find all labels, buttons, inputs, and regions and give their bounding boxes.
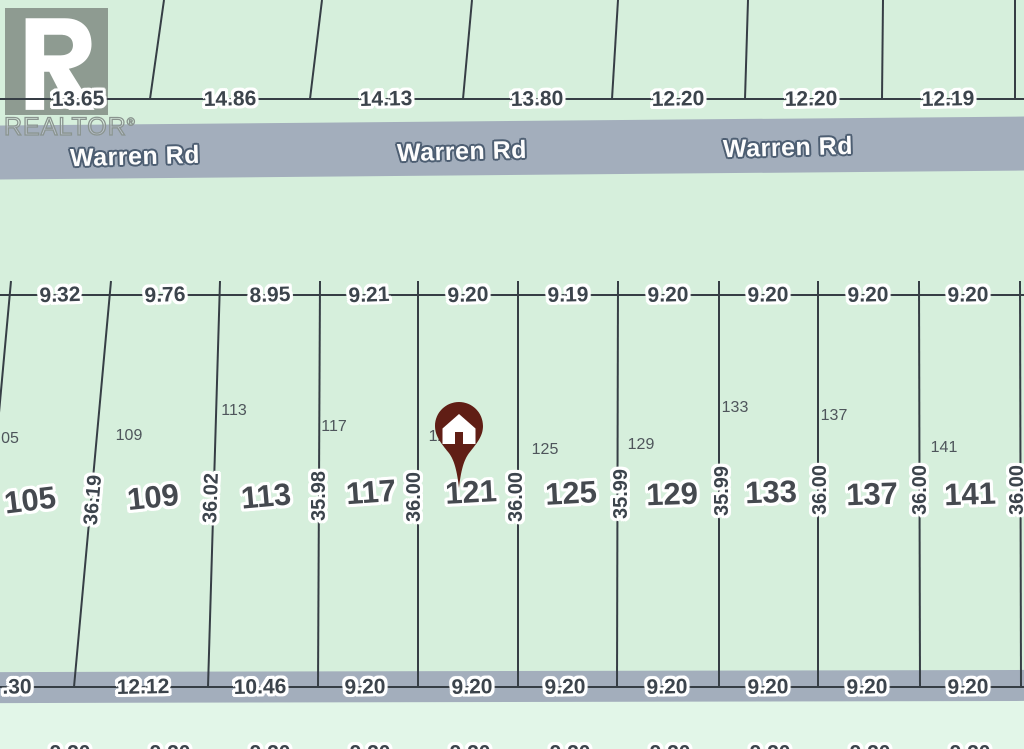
distance-label: 9.20 bbox=[947, 284, 988, 306]
distance-label: 9.20 bbox=[747, 284, 788, 306]
distance-label: 9.20 bbox=[250, 743, 291, 749]
distance-label: 9.32 bbox=[39, 284, 81, 306]
distance-label: 9.20 bbox=[850, 743, 891, 749]
distance-label: 13.80 bbox=[511, 88, 564, 110]
distance-label: 9.19 bbox=[547, 284, 588, 306]
plat-map-canvas: REALTOR® Warren RdWarren RdWarren Rd13.6… bbox=[0, 0, 1024, 749]
distance-label: 9.20 bbox=[650, 743, 691, 749]
distance-label: 9.20 bbox=[846, 676, 887, 698]
distance-label: 13.65 bbox=[52, 88, 105, 110]
distance-label: 14.86 bbox=[204, 88, 257, 110]
side-dimension-label: 36.00 bbox=[810, 465, 830, 515]
distance-label: 9.20 bbox=[450, 743, 491, 749]
lot-number-141: 141 bbox=[944, 478, 997, 511]
distance-label: 12.20 bbox=[785, 88, 838, 110]
house-icon bbox=[435, 402, 483, 488]
side-dimension-label: 36.00 bbox=[404, 472, 424, 522]
lot-number-133: 133 bbox=[745, 476, 798, 509]
lot-address-label: 125 bbox=[532, 442, 559, 458]
distance-label: 9.20 bbox=[447, 284, 489, 306]
lot-address-label: 129 bbox=[628, 437, 655, 453]
house-location-pin[interactable] bbox=[435, 402, 483, 488]
distance-label: 9.20 bbox=[947, 676, 988, 698]
distance-label: 9.20 bbox=[747, 676, 788, 698]
distance-label: 14.13 bbox=[360, 88, 413, 110]
side-dimension-label: 36.02 bbox=[200, 473, 222, 524]
realtor-wordmark: REALTOR® bbox=[4, 115, 136, 140]
distance-label: 10.46 bbox=[234, 676, 287, 698]
north-lot-boundary-line bbox=[611, 0, 619, 99]
distance-label: 9.20 bbox=[344, 676, 385, 698]
distance-label: 9.76 bbox=[144, 284, 186, 306]
lot-number-137: 137 bbox=[846, 478, 899, 511]
distance-label: 9.20 bbox=[451, 676, 492, 698]
north-lot-boundary-line bbox=[881, 0, 884, 99]
north-lot-boundary-line bbox=[149, 0, 165, 99]
lot-address-label: 109 bbox=[116, 428, 143, 444]
lot-address-label: 05 bbox=[1, 431, 19, 447]
distance-label: 9.21 bbox=[348, 284, 390, 306]
side-dimension-label: 36.00 bbox=[910, 465, 930, 515]
distance-label: 9.20 bbox=[750, 743, 791, 749]
side-dimension-label: 35.99 bbox=[712, 466, 732, 516]
road-name-label: Warren Rd bbox=[723, 134, 854, 162]
lot-number-105: 105 bbox=[2, 481, 57, 518]
lot-address-label: 117 bbox=[321, 419, 347, 435]
lot-number-129: 129 bbox=[646, 478, 699, 511]
north-lot-boundary-line bbox=[1014, 0, 1016, 99]
registered-trademark-symbol: ® bbox=[127, 117, 136, 129]
north-lot-boundary-line bbox=[309, 0, 323, 99]
distance-label: 9.20 bbox=[150, 743, 191, 749]
distance-label: 9.20 bbox=[950, 743, 991, 749]
lot-address-label: 141 bbox=[931, 440, 958, 456]
lot-address-label: 113 bbox=[221, 403, 247, 419]
road-name-label: Warren Rd bbox=[70, 143, 201, 171]
side-dimension-label: 35.98 bbox=[309, 471, 329, 521]
lot-address-label: 133 bbox=[722, 400, 749, 416]
side-dimension-label: 36.00 bbox=[1007, 465, 1024, 515]
distance-label: 9.20 bbox=[50, 743, 91, 749]
distance-label: 9.20 bbox=[350, 743, 391, 749]
distance-label: 8.95 bbox=[249, 284, 291, 306]
distance-label: .30 bbox=[2, 676, 32, 698]
north-lot-boundary-line bbox=[744, 0, 749, 99]
side-dimension-label: 36.00 bbox=[506, 472, 526, 522]
distance-label: 9.20 bbox=[550, 743, 591, 749]
north-lot-boundary-line bbox=[462, 0, 473, 99]
lot-number-125: 125 bbox=[544, 476, 597, 510]
distance-label: 9.20 bbox=[646, 676, 687, 698]
lot-number-109: 109 bbox=[126, 479, 181, 515]
side-dimension-label: 35.99 bbox=[611, 469, 631, 519]
distance-label: 12.19 bbox=[922, 88, 975, 110]
lot-address-label: 137 bbox=[821, 408, 848, 424]
road-name-label: Warren Rd bbox=[397, 138, 528, 166]
distance-label: 12.12 bbox=[117, 676, 170, 698]
distance-label: 9.20 bbox=[647, 284, 688, 306]
distance-label: 9.20 bbox=[544, 676, 585, 698]
lot-number-113: 113 bbox=[240, 478, 293, 513]
lot-number-117: 117 bbox=[345, 475, 397, 509]
side-dimension-label: 36.19 bbox=[81, 474, 105, 526]
distance-label: 12.20 bbox=[652, 88, 705, 110]
distance-label: 9.20 bbox=[847, 284, 888, 306]
